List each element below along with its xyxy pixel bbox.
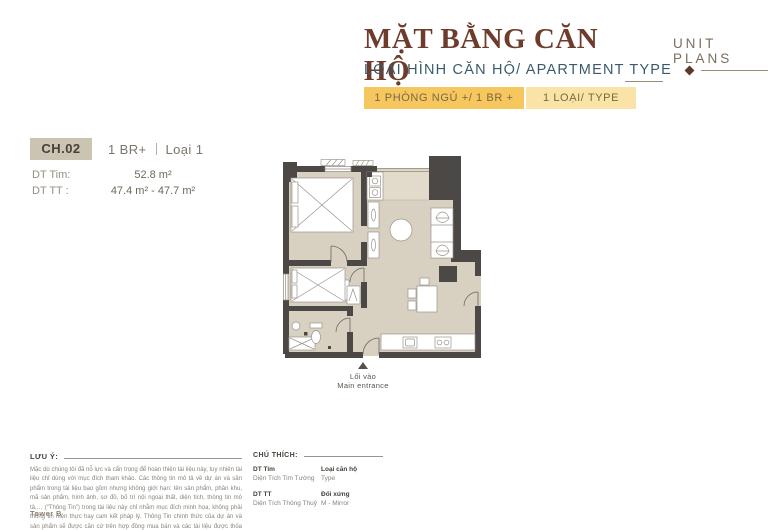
legend-item: Loại căn hộ Type [321, 466, 383, 482]
legend-heading: CHÚ THÍCH: [253, 452, 298, 459]
legend-rule [304, 456, 383, 457]
page-title: MẶT BẰNG CĂN HỘ [364, 24, 615, 88]
type-badges: 1 PHÒNG NGỦ +/ 1 BR + 1 LOẠI/ TYPE [364, 87, 636, 109]
legend-term: Đối xứng [321, 491, 383, 498]
legend-definition: Diện Tích Tim Tường [253, 475, 321, 482]
area-row-tim: DT Tim: 52.8 m² [32, 167, 218, 183]
legend-definition: M - Mirror [321, 500, 383, 507]
dt-tim-label: DT Tim: [32, 167, 88, 183]
entrance-label-en: Main entrance [303, 381, 423, 390]
legend-definition: Type [321, 475, 383, 482]
badge-bedroom-type[interactable]: 1 PHÒNG NGỦ +/ 1 BR + [364, 87, 524, 109]
title-divider-line [625, 81, 663, 82]
unit-areas: DT Tim: 52.8 m² DT TT : 47.4 m² - 47.7 m… [32, 167, 218, 199]
notes-body: Mặc dù chúng tôi đã nỗ lực và cẩn trọng … [30, 466, 242, 530]
area-row-tt: DT TT : 47.4 m² - 47.7 m² [32, 183, 218, 199]
floor-plan [283, 156, 513, 379]
subtitle-rule [701, 70, 768, 71]
dt-tt-value: 47.4 m² - 47.7 m² [88, 183, 218, 199]
legend-term: DT Tim [253, 466, 321, 473]
legend-term: DT TT [253, 491, 321, 498]
diamond-bullet-icon [685, 65, 695, 75]
notes-header: LƯU Ý: [30, 452, 242, 461]
legend-item: DT Tim Diện Tích Tim Tường [253, 466, 321, 482]
notes-heading: LƯU Ý: [30, 452, 58, 461]
badge-variant-count[interactable]: 1 LOẠI/ TYPE [526, 87, 636, 109]
unit-type: 1 BR+ [108, 142, 147, 157]
legend-section: CHÚ THÍCH: DT Tim Diện Tích Tim Tường Lo… [253, 452, 383, 507]
legend-term: Loại căn hộ [321, 466, 383, 473]
entrance-label: Lối vào Main entrance [303, 362, 423, 390]
floor-plan-drawing [283, 156, 513, 374]
legend-item: DT TT Diện Tích Thông Thuỷ [253, 491, 321, 507]
notes-rule [64, 458, 242, 459]
dt-tim-value: 52.8 m² [88, 167, 218, 183]
header: MẶT BẰNG CĂN HỘ UNIT PLANS [364, 24, 768, 88]
entrance-label-vi: Lối vào [303, 372, 423, 381]
subtitle: LOẠI HÌNH CĂN HỘ/ APARTMENT TYPE [364, 62, 672, 78]
type-divider [156, 143, 157, 155]
subtitle-row: LOẠI HÌNH CĂN HỘ/ APARTMENT TYPE [364, 62, 768, 78]
tower-label: Tower B [30, 509, 62, 518]
unit-info-row: CH.02 1 BR+Loại 1 [30, 138, 203, 160]
legend-grid: DT Tim Diện Tích Tim Tường Loại căn hộ T… [253, 466, 383, 507]
notes-section: LƯU Ý: Mặc dù chúng tôi đã nỗ lực và cẩn… [30, 452, 242, 530]
dt-tt-label: DT TT : [32, 183, 88, 199]
unit-type-label: 1 BR+Loại 1 [108, 142, 203, 157]
legend-header: CHÚ THÍCH: [253, 452, 383, 459]
entrance-arrow-icon [358, 362, 368, 369]
legend-definition: Diện Tích Thông Thuỷ [253, 500, 321, 507]
unit-plan-page: MẶT BẰNG CĂN HỘ UNIT PLANS LOẠI HÌNH CĂN… [0, 0, 768, 530]
unit-code-box[interactable]: CH.02 [30, 138, 92, 160]
unit-variant: Loại 1 [166, 142, 204, 157]
legend-item: Đối xứng M - Mirror [321, 491, 383, 507]
